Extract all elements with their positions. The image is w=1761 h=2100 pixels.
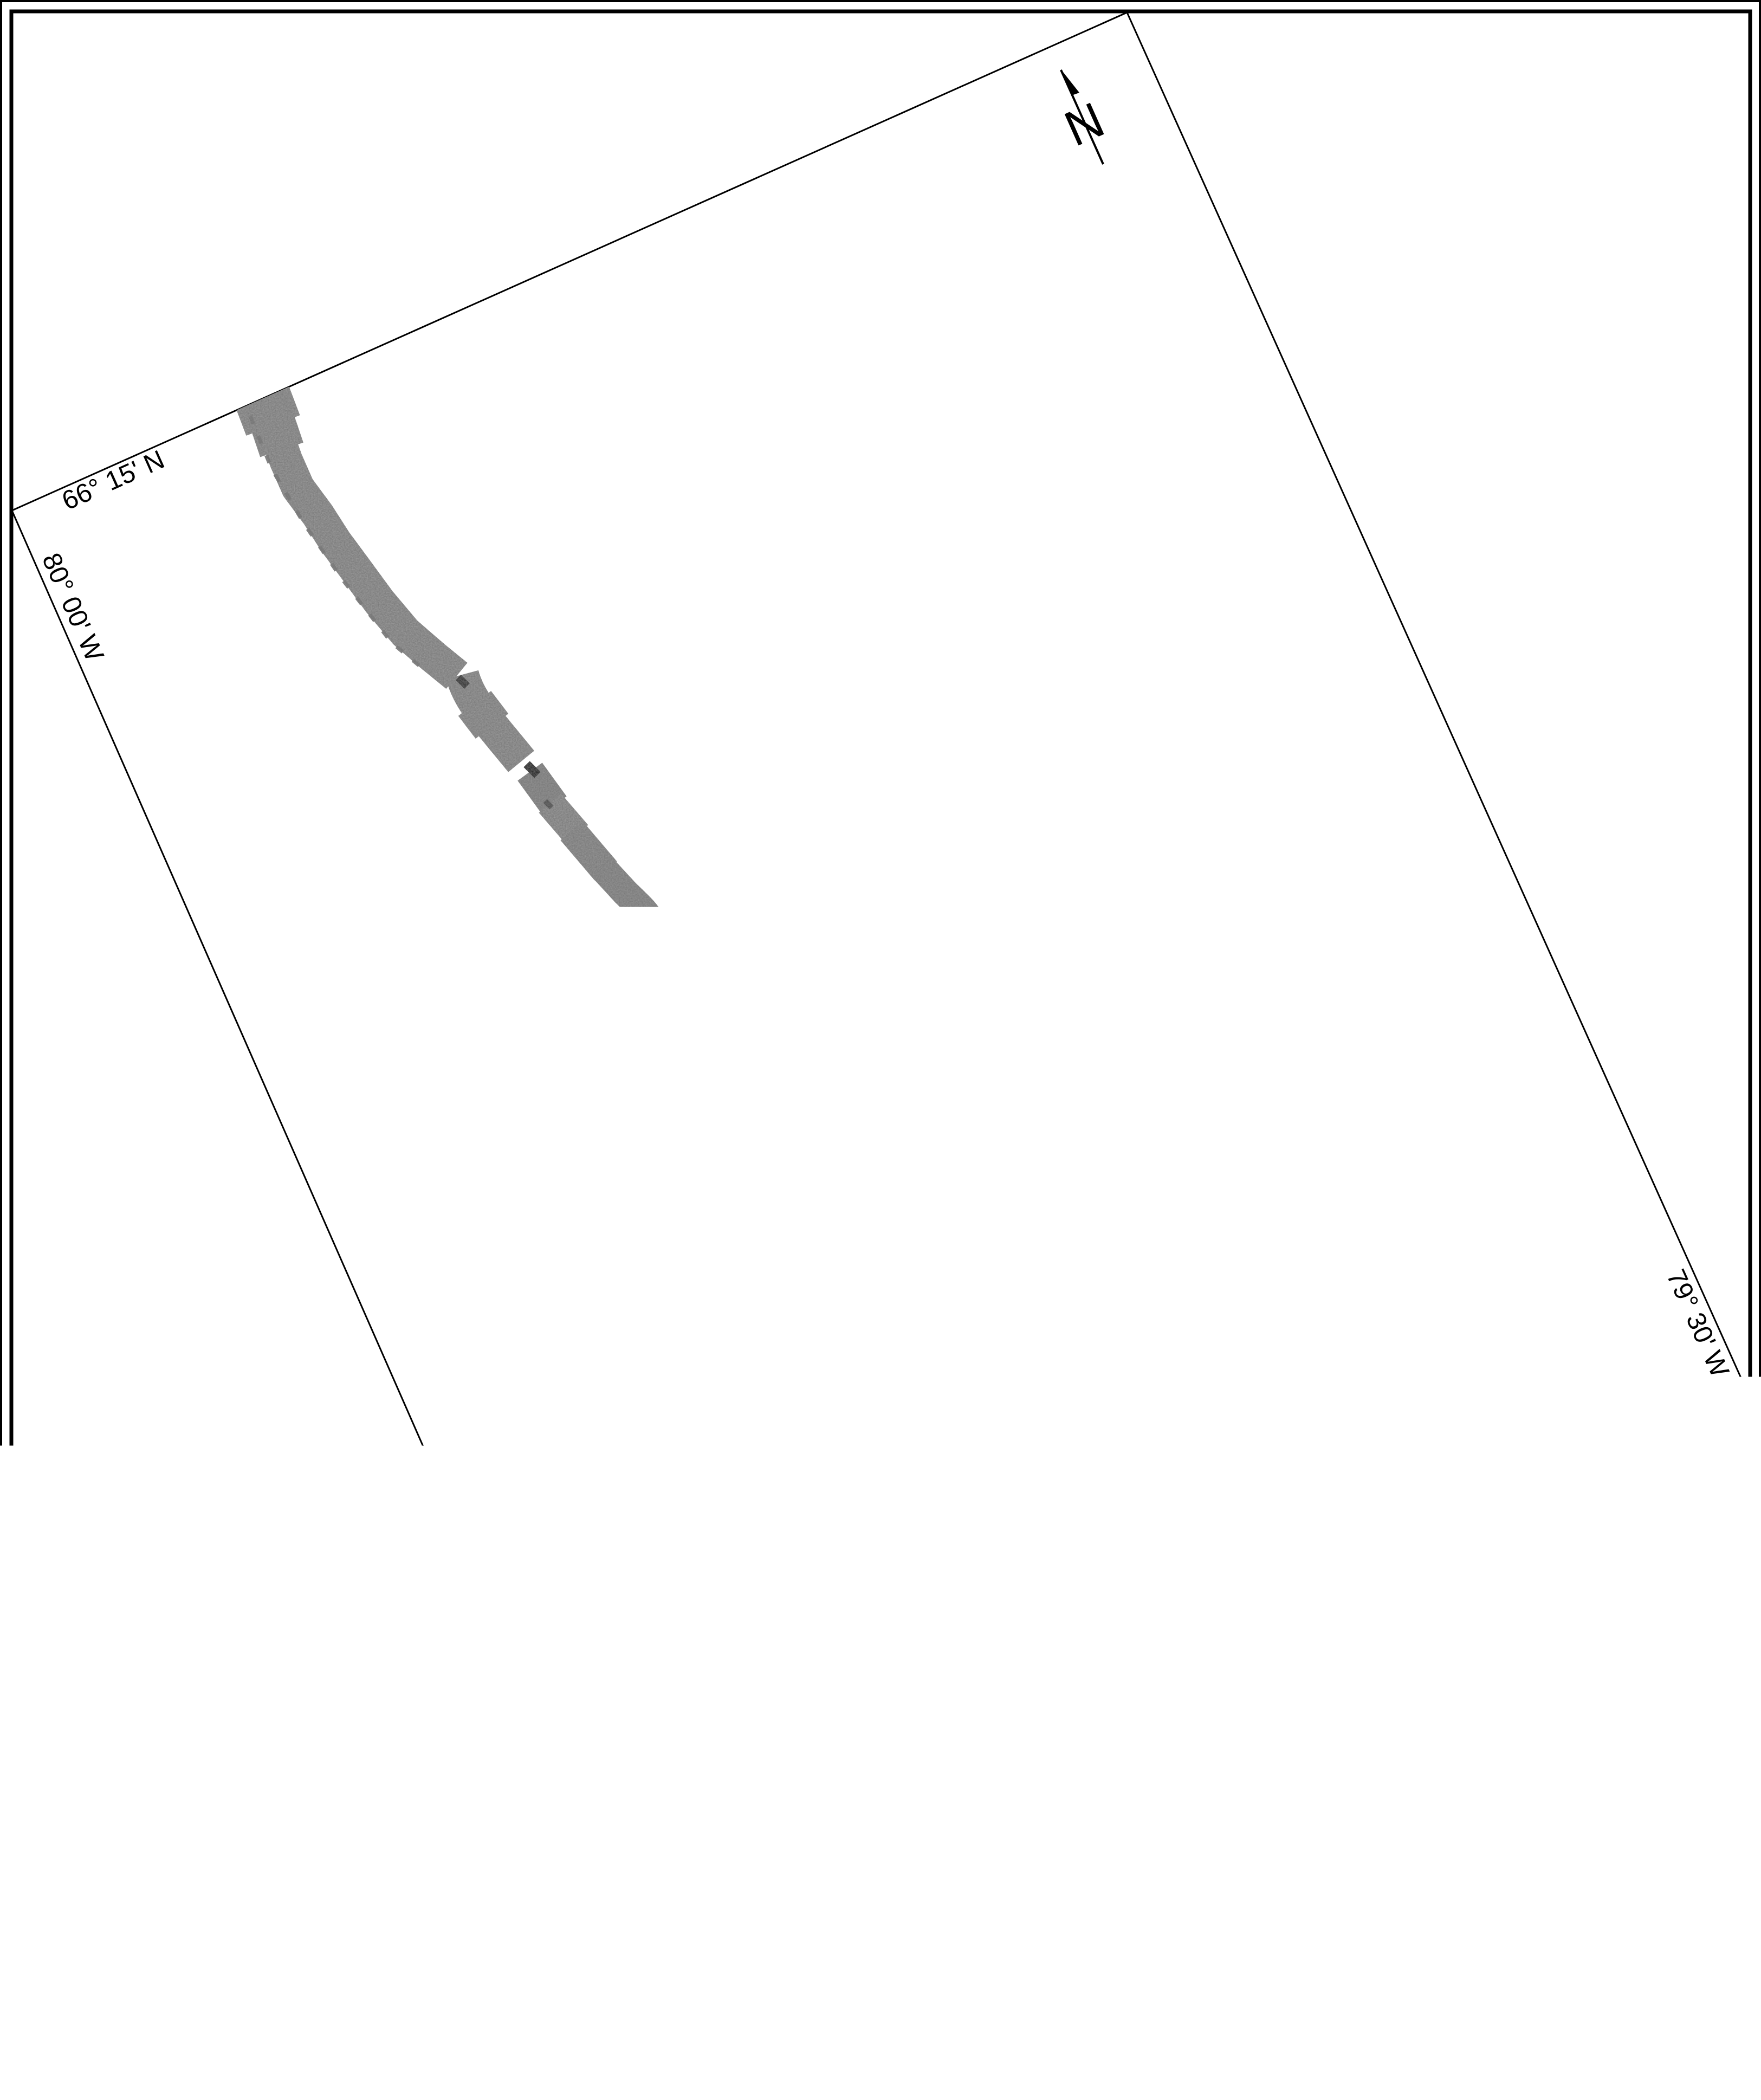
svg-text:10 km: 10 km xyxy=(1013,1949,1083,1982)
svg-text:-40 dB: -40 dB xyxy=(461,2027,540,2058)
svg-text:ArcticNet: ArcticNet xyxy=(1516,1942,1675,1988)
svg-text:5 NM: 5 NM xyxy=(1010,2020,1070,2053)
svg-text:CANADA: CANADA xyxy=(140,2026,206,2044)
svg-text:OMG/ArcticNet Basemap: 66_15_N: OMG/ArcticNet Basemap: 66_15_N_80_00_W G… xyxy=(355,2062,1322,2090)
svg-text:-5 dB: -5 dB xyxy=(461,1910,523,1941)
svg-text:Ocean Mapping Group: Ocean Mapping Group xyxy=(13,1923,323,1959)
